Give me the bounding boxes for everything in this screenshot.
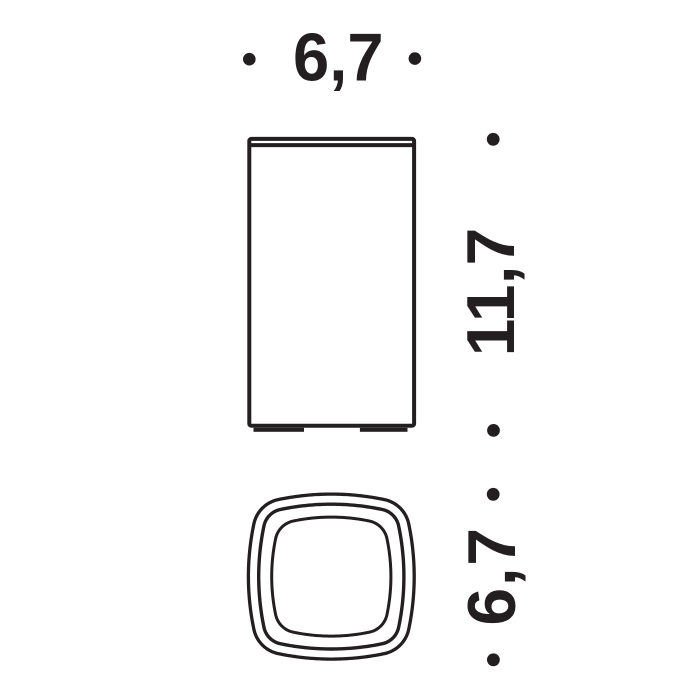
svg-text:11,7: 11,7	[453, 228, 529, 357]
svg-text:6,7: 6,7	[293, 20, 384, 96]
svg-text:6,7: 6,7	[454, 526, 530, 625]
